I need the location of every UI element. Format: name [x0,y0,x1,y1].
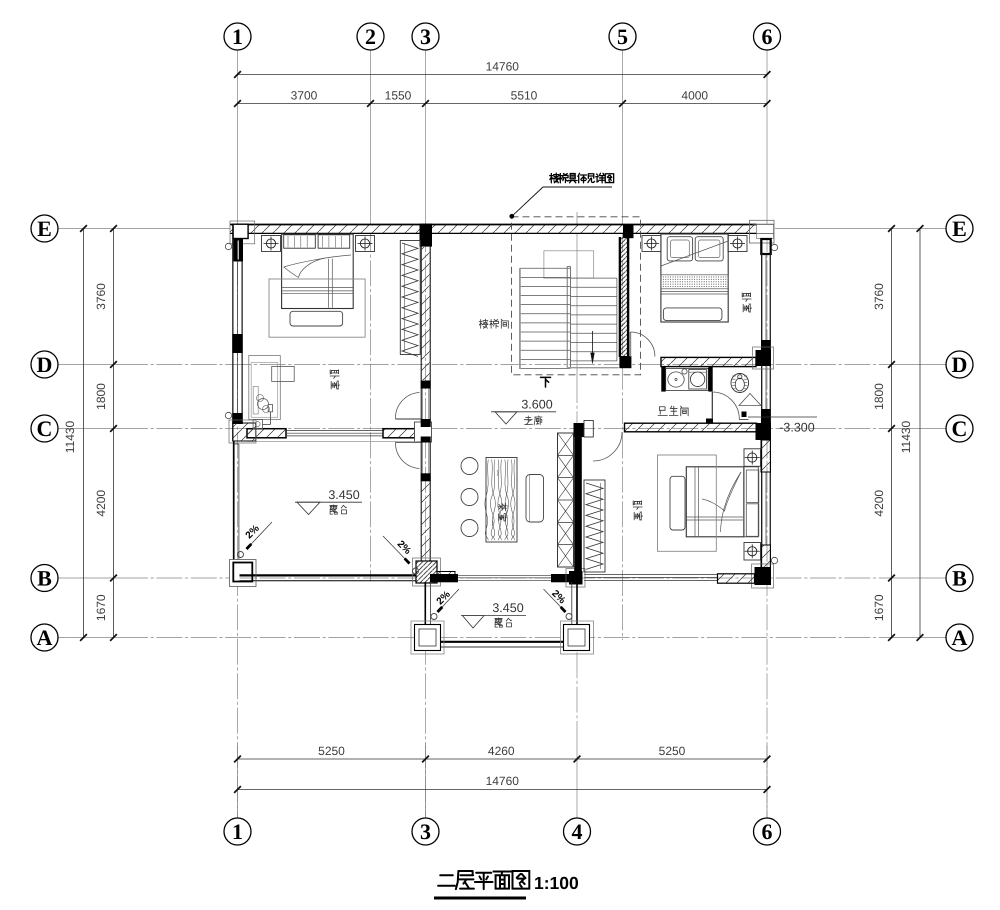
svg-text:2: 2 [365,24,376,49]
svg-text:B: B [952,566,967,591]
svg-text:4260: 4260 [488,744,515,758]
svg-text:5250: 5250 [659,744,686,758]
svg-text:6: 6 [762,819,773,844]
svg-text:C: C [37,416,53,441]
svg-text:4: 4 [572,819,583,844]
svg-text:1550: 1550 [385,89,412,103]
svg-text:C: C [952,416,968,441]
svg-text:4200: 4200 [94,490,108,517]
svg-text:6: 6 [762,24,773,49]
svg-text:1800: 1800 [872,383,886,410]
svg-text:3: 3 [420,24,431,49]
svg-text:3700: 3700 [291,89,318,103]
svg-text:1:100: 1:100 [534,873,579,893]
svg-text:1800: 1800 [94,383,108,410]
svg-text:3.450: 3.450 [328,488,359,502]
svg-text:4200: 4200 [872,490,886,517]
svg-text:1: 1 [232,24,243,49]
svg-text:E: E [37,216,52,241]
svg-text:11430: 11430 [899,420,913,453]
svg-text:14760: 14760 [486,774,520,788]
svg-text:3760: 3760 [94,283,108,310]
svg-text:11430: 11430 [63,420,77,453]
svg-text:D: D [37,352,53,377]
svg-text:-3.300: -3.300 [779,421,814,435]
svg-text:1670: 1670 [872,594,886,621]
svg-text:3.600: 3.600 [521,398,552,412]
svg-text:1670: 1670 [94,594,108,621]
svg-text:3760: 3760 [872,283,886,310]
svg-text:3.450: 3.450 [492,601,523,615]
svg-text:14760: 14760 [486,60,520,74]
svg-text:4000: 4000 [681,89,708,103]
svg-text:A: A [952,625,968,650]
svg-text:B: B [37,566,52,591]
svg-text:5250: 5250 [318,744,345,758]
svg-text:5510: 5510 [511,89,538,103]
svg-text:5: 5 [617,24,628,49]
svg-text:1: 1 [232,819,243,844]
svg-text:E: E [952,216,967,241]
svg-text:D: D [952,352,968,377]
svg-text:3: 3 [420,819,431,844]
svg-text:A: A [37,625,53,650]
